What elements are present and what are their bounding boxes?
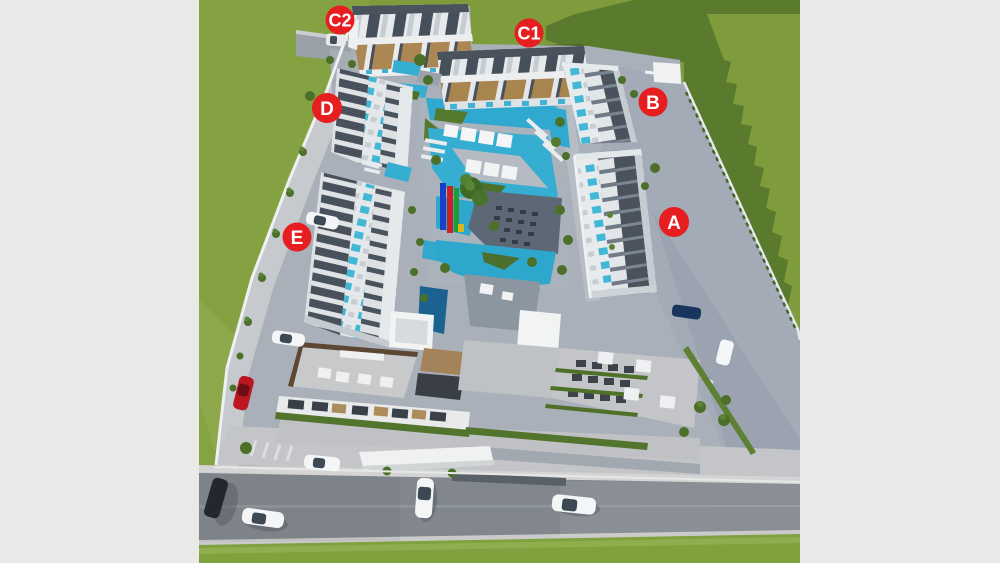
svg-text:C2: C2 [328, 11, 351, 31]
svg-text:E: E [291, 228, 304, 249]
svg-text:D: D [320, 99, 334, 120]
svg-text:B: B [646, 93, 660, 114]
svg-text:C1: C1 [517, 24, 540, 44]
svg-text:A: A [667, 213, 681, 234]
